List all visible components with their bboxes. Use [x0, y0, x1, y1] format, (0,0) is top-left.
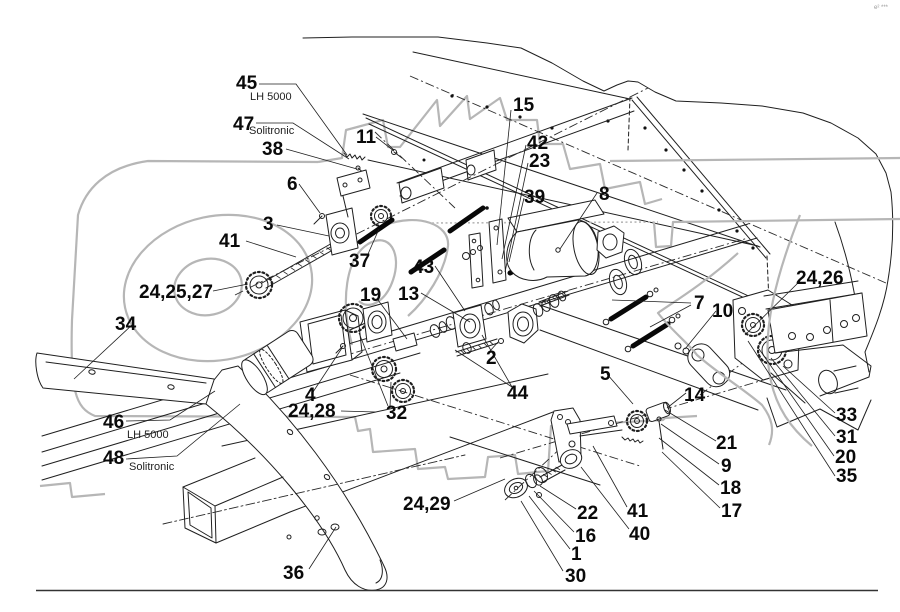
svg-text:7: 7: [694, 293, 705, 314]
svg-text:24,26: 24,26: [796, 268, 844, 289]
svg-text:Solitronic: Solitronic: [129, 461, 175, 473]
svg-text:6: 6: [287, 174, 298, 195]
svg-text:43: 43: [413, 257, 434, 278]
svg-text:24,28: 24,28: [288, 401, 336, 422]
svg-text:13: 13: [398, 284, 419, 305]
svg-text:33: 33: [836, 405, 857, 426]
svg-text:22: 22: [577, 503, 598, 524]
svg-text:9: 9: [721, 456, 732, 477]
svg-text:20: 20: [835, 447, 856, 468]
svg-text:30: 30: [565, 566, 586, 587]
svg-text:40: 40: [629, 524, 650, 545]
svg-text:38: 38: [262, 139, 283, 160]
svg-text:e² ***: e² ***: [874, 5, 889, 11]
svg-text:8: 8: [599, 184, 610, 205]
svg-text:15: 15: [513, 95, 535, 116]
svg-text:48: 48: [103, 448, 124, 469]
svg-text:34: 34: [115, 314, 137, 335]
svg-text:21: 21: [716, 433, 738, 454]
svg-text:31: 31: [836, 427, 858, 448]
svg-text:41: 41: [627, 501, 649, 522]
svg-text:32: 32: [386, 403, 407, 424]
svg-text:10: 10: [712, 301, 733, 322]
svg-text:18: 18: [720, 478, 741, 499]
svg-text:24,29: 24,29: [403, 494, 451, 515]
svg-text:41: 41: [219, 231, 241, 252]
svg-text:17: 17: [721, 501, 742, 522]
svg-text:44: 44: [507, 383, 529, 404]
svg-text:1: 1: [571, 544, 582, 565]
svg-text:11: 11: [356, 127, 377, 148]
svg-text:3: 3: [263, 214, 274, 235]
svg-text:39: 39: [524, 187, 545, 208]
svg-text:14: 14: [684, 385, 706, 406]
svg-text:35: 35: [836, 466, 858, 487]
svg-text:24,25,27: 24,25,27: [139, 282, 213, 303]
svg-text:23: 23: [529, 151, 550, 172]
svg-text:19: 19: [360, 285, 381, 306]
svg-text:LH 5000: LH 5000: [250, 91, 292, 103]
svg-text:Solitronic: Solitronic: [249, 125, 295, 137]
svg-text:2: 2: [486, 348, 497, 369]
svg-text:LH 5000: LH 5000: [127, 429, 169, 441]
svg-text:46: 46: [103, 412, 124, 433]
svg-text:37: 37: [349, 251, 370, 272]
svg-text:5: 5: [600, 364, 611, 385]
svg-text:36: 36: [283, 563, 304, 584]
